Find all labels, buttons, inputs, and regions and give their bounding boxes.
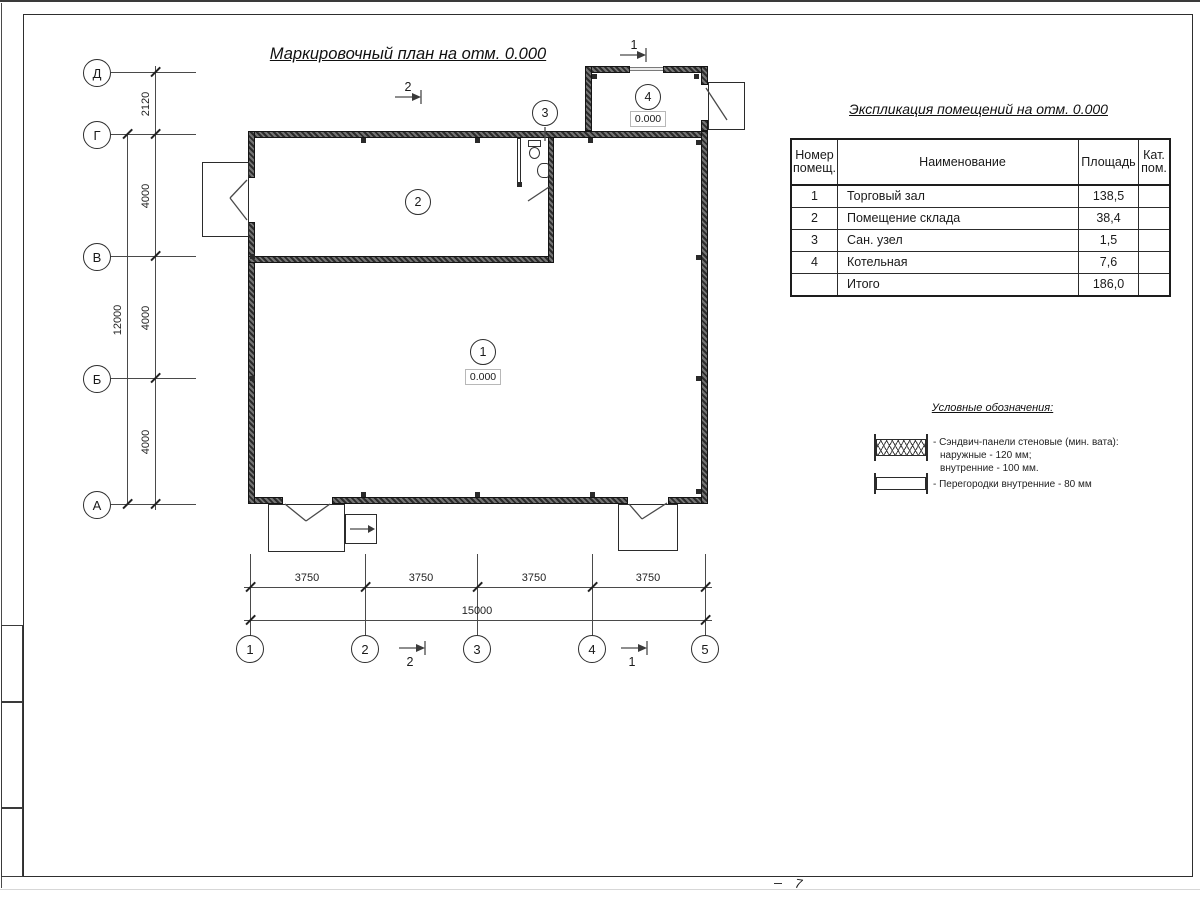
header-area: Площадь [1079,140,1139,184]
panel-joint [696,140,701,145]
dim-label-12000: 12000 [112,297,124,343]
exterior-wall-left-seg1 [248,131,255,178]
axis-bubble-1: 1 [236,635,264,663]
room-schedule-title: Экспликация помещений на отм. 0.000 [790,101,1167,117]
panel-joint [361,138,366,143]
drawing-sheet: Маркировочный план на отм. 0.000 Эксплик… [0,0,1200,900]
cell-category [1139,186,1169,207]
cell-number [792,274,838,295]
boiler-window [630,67,663,71]
axis-bubble-A: А [83,491,111,519]
dim-label-4000: 4000 [140,422,152,462]
legend-line: наружные - 120 мм; [933,449,1119,462]
exterior-wall-top [248,131,708,138]
legend-line: внутренние - 100 мм. [933,462,1119,475]
dim-label-15000: 15000 [454,605,500,617]
dim-label-3750: 3750 [401,572,441,584]
legend-item-1-text: - Сэндвич-панели стеновые (мин. вата): н… [933,436,1119,475]
room-4-number: 4 [635,84,661,110]
left-dim-line-total [127,134,128,505]
toilet-partition-foot [517,182,522,187]
panel-joint [250,376,255,381]
panel-joint [696,255,701,260]
cell-category [1139,230,1169,251]
section-marker-1-bottom-label: 1 [624,655,640,669]
dim-label-3750: 3750 [628,572,668,584]
interior-wall-storage-bottom [248,256,554,263]
section-marker-2-top-label: 2 [400,80,416,94]
ext-line-2 [365,554,366,637]
legend-symbol-partition [876,477,926,490]
panel-joint [696,376,701,381]
legend-line: - Перегородки внутренние - 80 мм [933,478,1092,491]
section-marker-1-top-label: 1 [626,38,642,52]
panel-joint [592,74,597,79]
exterior-wall-left-seg2 [248,222,255,504]
cell-area: 38,4 [1079,208,1139,229]
cell-number: 2 [792,208,838,229]
paper-bottom-shadow [0,889,1200,890]
legend-line: - Сэндвич-панели стеновые (мин. вата): [933,436,1119,449]
cell-area: 1,5 [1079,230,1139,251]
filing-strip-box-2 [1,702,23,808]
legend-symbol-sandwich-panel [876,439,926,456]
bottom-dim-line-total [244,620,712,621]
exterior-wall-right [701,131,708,504]
cell-name: Итого [838,274,1079,295]
entrance-arrow-box [345,514,377,544]
wc-tank [528,140,541,147]
panel-joint [590,492,595,497]
table-row-total: Итого 186,0 [792,273,1169,295]
room-schedule-table: Номер помещ. Наименование Площадь Кат. п… [790,138,1171,297]
dim-label-3750: 3750 [514,572,554,584]
bottom-left-porch [268,504,345,552]
cell-area: 138,5 [1079,186,1139,207]
table-row: 4 Котельная 7,6 [792,251,1169,273]
panel-joint [361,492,366,497]
boiler-wall-left [585,66,592,131]
section-marker-2-bottom-label: 2 [402,655,418,669]
cell-name: Торговый зал [838,186,1079,207]
axis-bubble-D: Д [83,59,111,87]
boiler-wall-right-seg2 [701,120,708,131]
panel-joint [694,74,699,79]
header-category: Кат. пом. [1139,140,1169,184]
legend-symbol-endbar [926,434,928,461]
room-2-number: 2 [405,189,431,215]
dim-label-4000: 4000 [140,298,152,338]
table-row: 1 Торговый зал 138,5 [792,184,1169,207]
dim-label-2120: 2120 [140,84,152,124]
cell-area: 7,6 [1079,252,1139,273]
page-mark-dash [774,883,782,884]
cell-category [1139,208,1169,229]
axis-bubble-5: 5 [691,635,719,663]
cell-category [1139,252,1169,273]
sink [537,163,549,178]
paper-top-edge [0,0,1200,2]
toilet-partition [517,138,521,186]
room-3-number: 3 [532,100,558,126]
ext-line-4 [592,554,593,637]
legend-symbol-endbar [874,434,876,461]
table-row: 2 Помещение склада 38,4 [792,207,1169,229]
header-room-number: Номер помещ. [792,140,838,184]
panel-joint [475,138,480,143]
exterior-wall-bottom-seg2 [332,497,628,504]
room-4-elevation: 0.000 [630,111,666,127]
ext-line-1 [250,554,251,637]
left-vestibule [202,162,249,237]
cell-number: 4 [792,252,838,273]
ext-line-3 [477,554,478,637]
axis-bubble-2: 2 [351,635,379,663]
room-1-number: 1 [470,339,496,365]
cell-area: 186,0 [1079,274,1139,295]
ext-line-5 [705,554,706,637]
panel-joint [475,492,480,497]
cell-name: Котельная [838,252,1079,273]
wc-bowl [529,147,540,159]
filing-strip-box-3 [1,808,23,877]
table-header-row: Номер помещ. Наименование Площадь Кат. п… [792,140,1169,184]
cell-number: 1 [792,186,838,207]
axis-bubble-3: 3 [463,635,491,663]
dim-label-3750: 3750 [287,572,327,584]
legend-item-2-text: - Перегородки внутренние - 80 мм [933,478,1092,491]
panel-joint [696,489,701,494]
header-name: Наименование [838,140,1079,184]
room-1-elevation: 0.000 [465,369,501,385]
bottom-right-porch [618,504,678,551]
boiler-wall-right-seg1 [701,66,708,85]
filing-strip-box-1 [1,625,23,702]
panel-joint [588,138,593,143]
cell-name: Сан. узел [838,230,1079,251]
table-row: 3 Сан. узел 1,5 [792,229,1169,251]
plan-title: Маркировочный план на отм. 0.000 [268,45,548,64]
axis-bubble-B: Б [83,365,111,393]
cell-name: Помещение склада [838,208,1079,229]
legend-title: Условные обозначения: [905,402,1080,414]
panel-joint [250,254,255,259]
cell-category [1139,274,1169,295]
cell-number: 3 [792,230,838,251]
dim-label-4000: 4000 [140,176,152,216]
legend-symbol-endbar [874,473,876,494]
boiler-porch [708,82,745,130]
axis-bubble-G: Г [83,121,111,149]
axis-bubble-4: 4 [578,635,606,663]
axis-bubble-V: В [83,243,111,271]
legend-symbol-endbar [926,473,928,494]
interior-wall-storage-right [548,137,554,263]
